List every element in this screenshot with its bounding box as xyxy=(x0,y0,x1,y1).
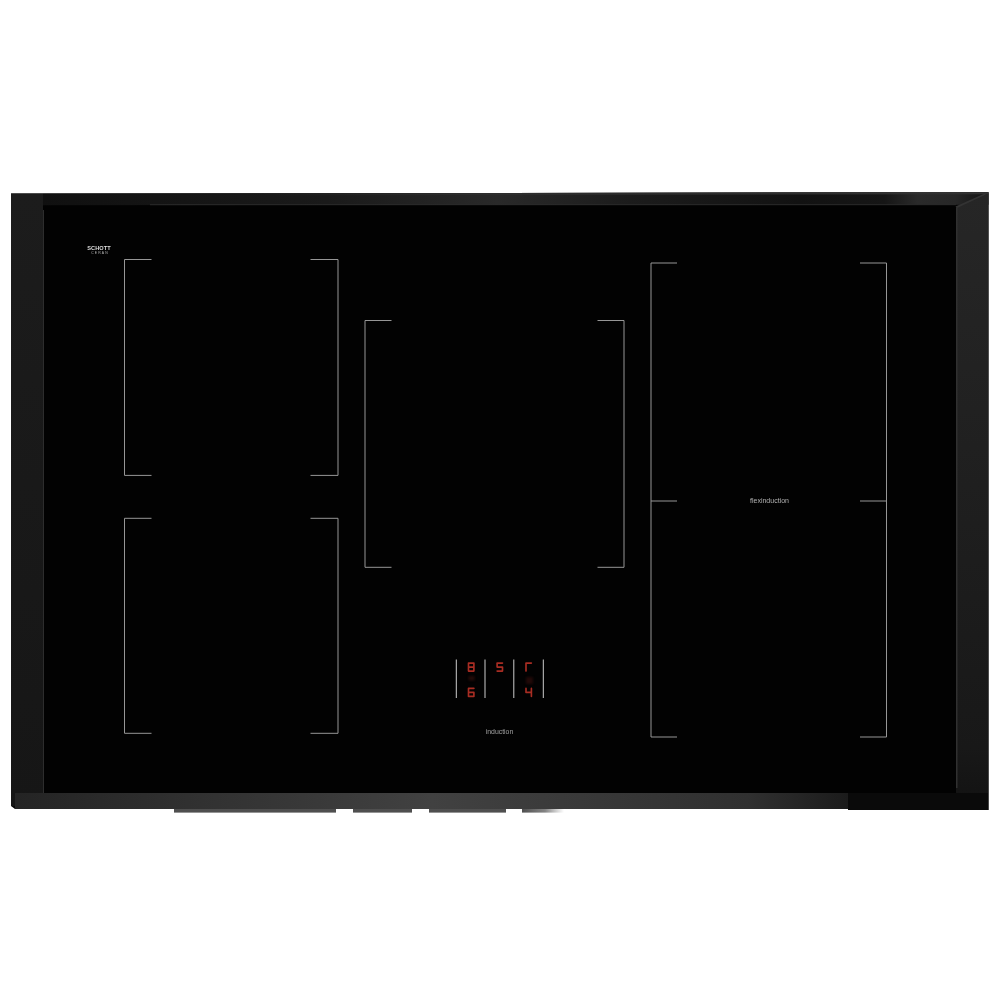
svg-text:induction: induction xyxy=(486,728,514,735)
svg-text:flexinduction: flexinduction xyxy=(750,497,789,504)
svg-text:CERAN: CERAN xyxy=(91,251,108,255)
